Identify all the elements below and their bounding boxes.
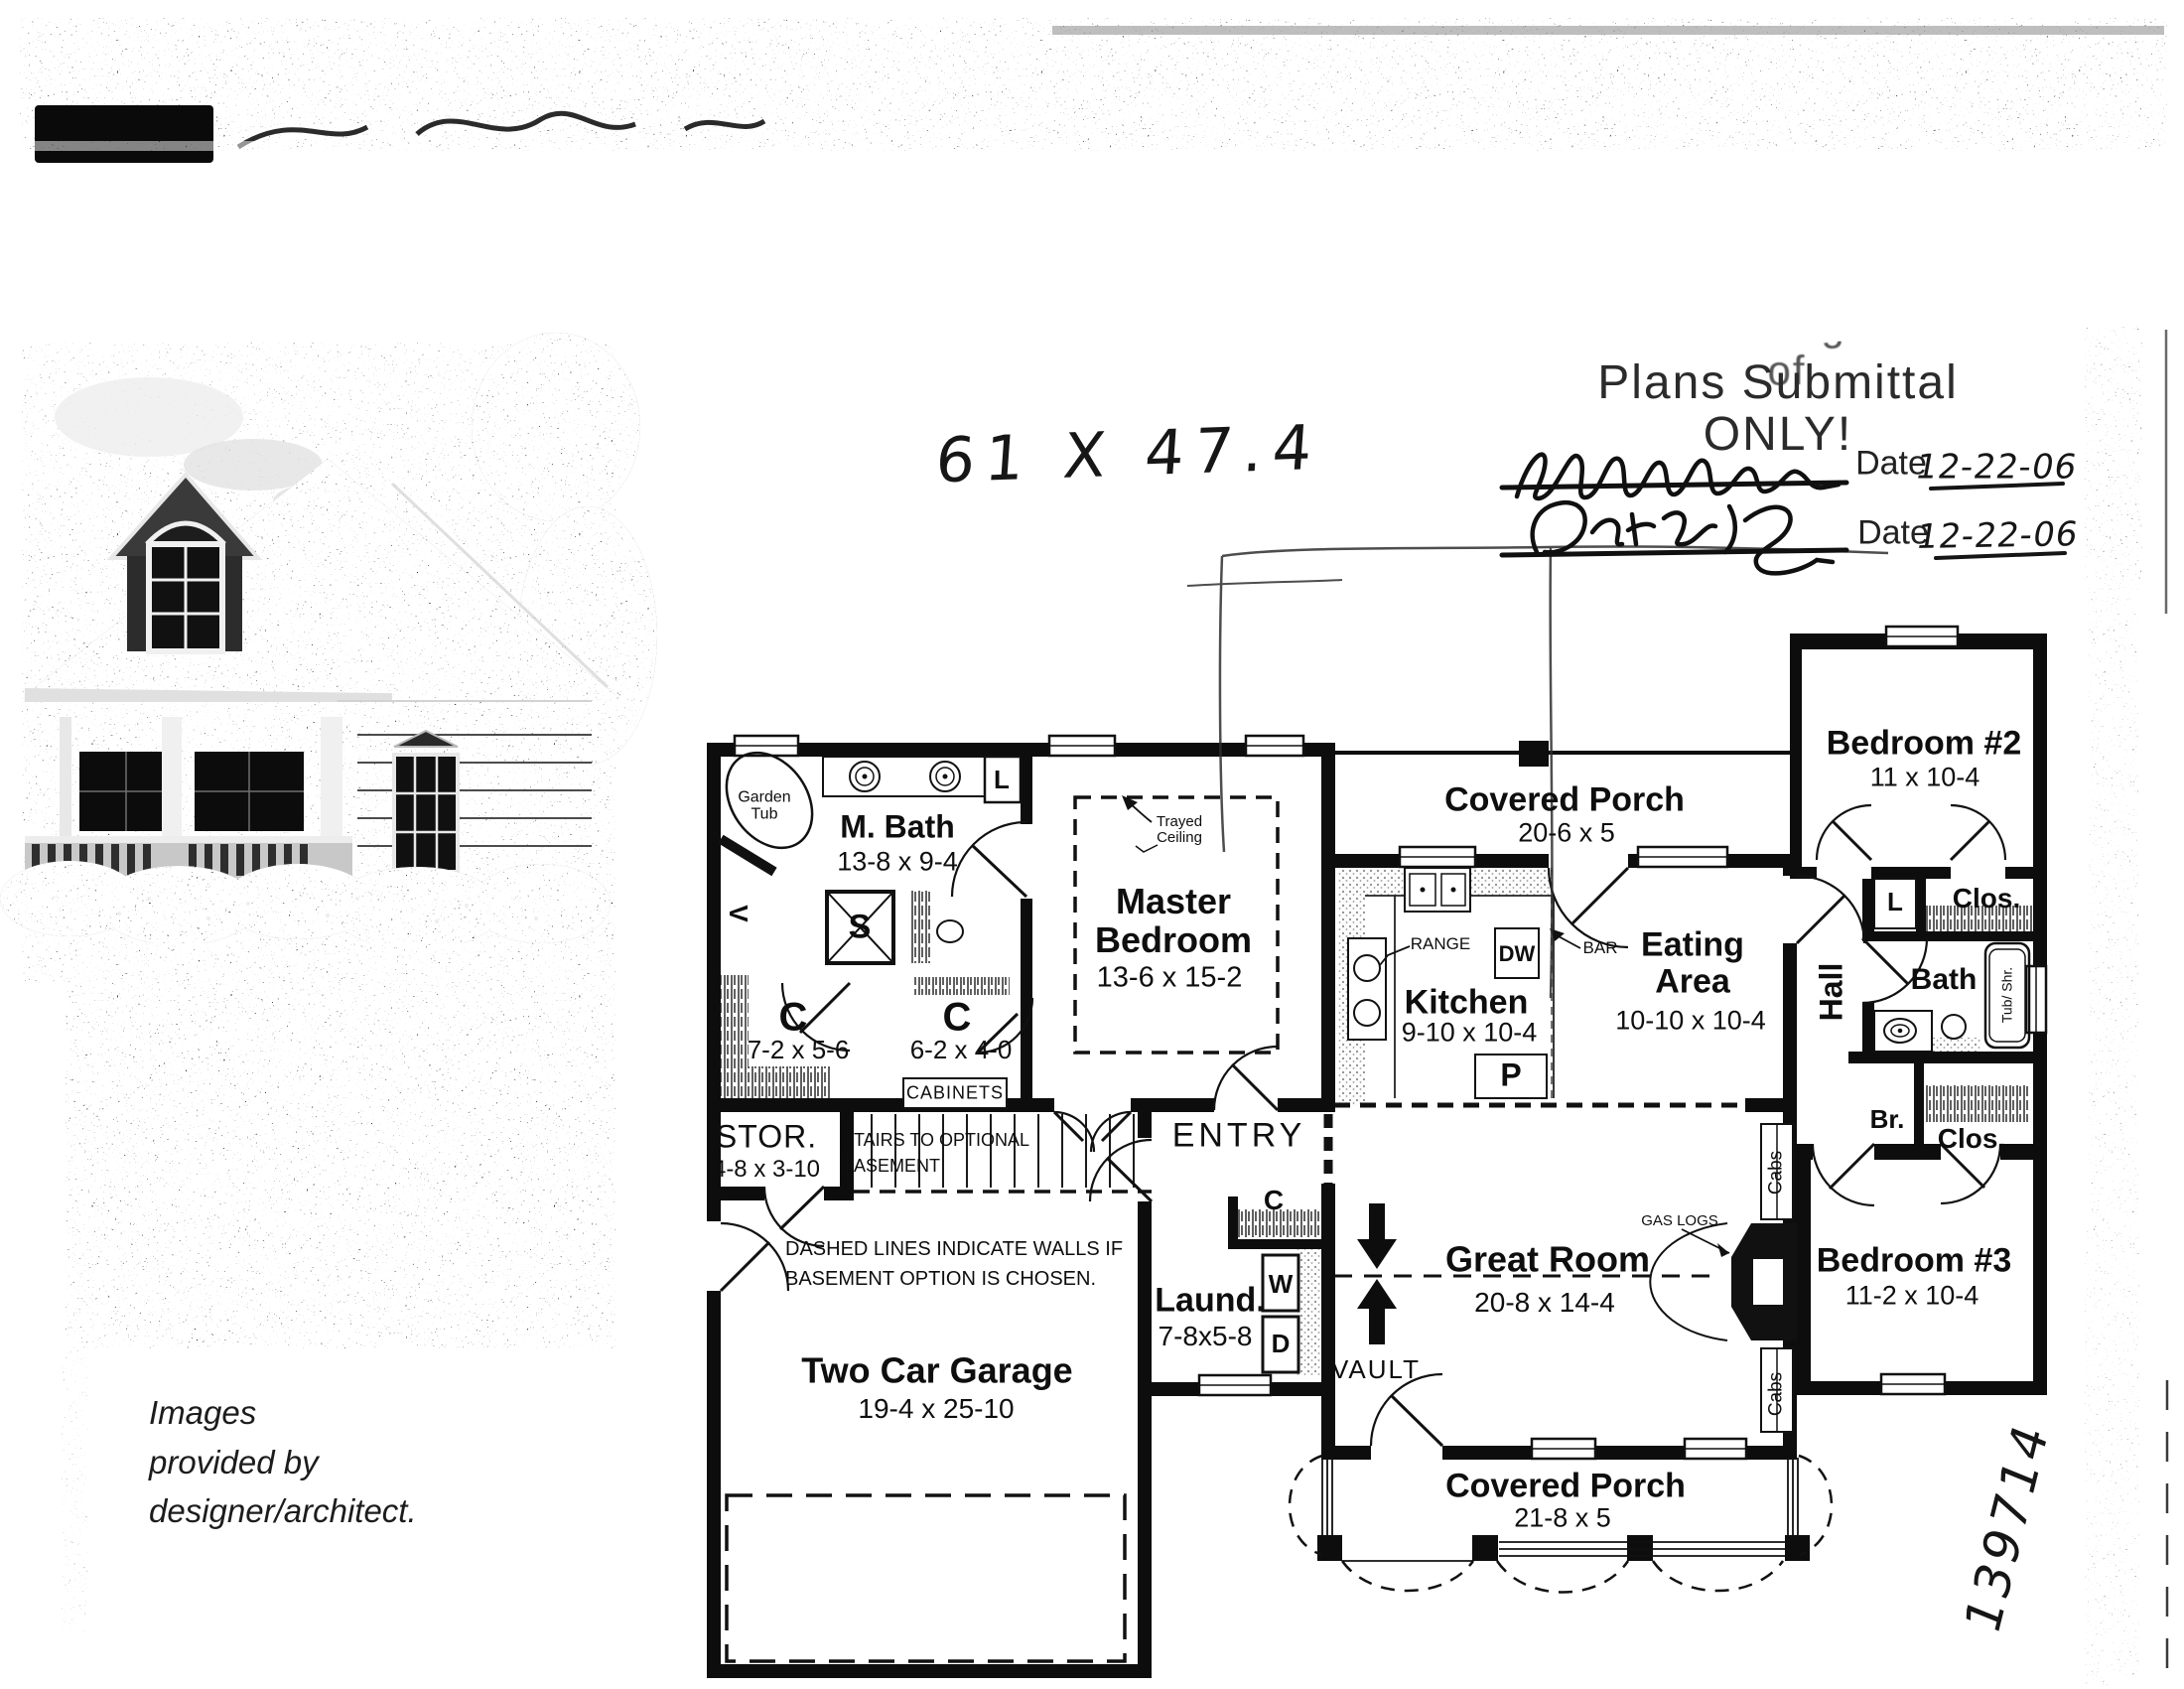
garden-tub-label: Garden Tub	[738, 789, 790, 824]
room-label-bath2: Bath	[1911, 964, 1978, 996]
room-label-bedroom2: Bedroom #2	[1827, 726, 2022, 763]
broom-closet-label: Br.	[1870, 1105, 1905, 1133]
vault-arrows-icon	[1357, 1203, 1397, 1344]
room-label-storage: STOR.	[716, 1120, 817, 1155]
cabinets-label: CABINETS	[906, 1083, 1004, 1102]
room-label-kitchen: Kitchen	[1405, 985, 1529, 1022]
closet1-label: C	[779, 996, 808, 1039]
room-dims-eating: 10-10 x 10-4	[1615, 1006, 1766, 1035]
room-label-master: Master Bedroom	[1095, 883, 1252, 960]
room-dims-kitchen: 9-10 x 10-4	[1402, 1018, 1538, 1047]
closet2-dims: 6-2 x 4-0	[910, 1036, 1013, 1063]
gas-logs-label: GAS LOGS	[1641, 1213, 1718, 1229]
linen-mbath-label: L	[994, 766, 1010, 793]
signature-1	[1502, 455, 1846, 498]
room-dims-great: 20-8 x 14-4	[1474, 1288, 1615, 1318]
handwritten-size-note: 61 X 47.4	[933, 415, 1323, 495]
room-dims-front-porch: 21-8 x 5	[1514, 1503, 1611, 1532]
trayed-ceiling-note: Trayed Ceiling	[1157, 814, 1202, 846]
dishwasher-label: DW	[1499, 942, 1536, 966]
room-dims-rear-porch: 20-6 x 5	[1518, 818, 1615, 847]
stamp-date-value-2: 12-22-06	[1914, 516, 2082, 556]
trayed-ceiling-arrow	[1122, 795, 1158, 852]
tub-shower-label: Tub/ Shr.	[1999, 967, 2014, 1023]
signature-2	[1502, 502, 1846, 573]
cabs-label-lower: Cabs	[1767, 1372, 1788, 1416]
vault-label: VAULT	[1331, 1355, 1421, 1383]
photo-credit: Images provided by designer/architect.	[149, 1388, 417, 1536]
closet1-dims: 7-2 x 5-6	[748, 1036, 850, 1063]
room-label-garage: Two Car Garage	[801, 1352, 1072, 1391]
dryer-label: D	[1272, 1330, 1291, 1357]
shower-label: S	[849, 910, 872, 946]
vanity-label: V	[725, 905, 752, 921]
room-dims-laundry: 7-8x5-8	[1159, 1322, 1253, 1351]
entry-label: ENTRY	[1172, 1118, 1306, 1155]
pantry-label: P	[1500, 1058, 1521, 1093]
hall-label: Hall	[1815, 963, 1849, 1022]
closet2-label: C	[943, 996, 972, 1039]
room-label-laundry: Laund.	[1155, 1283, 1265, 1320]
linen-hall-label: L	[1887, 888, 1903, 915]
fireplace-icon	[1650, 1223, 1797, 1340]
room-label-rear-porch: Covered Porch	[1444, 782, 1685, 819]
room-label-eating: Eating Area	[1641, 926, 1744, 999]
basement-note: DASHED LINES INDICATE WALLS IF BASEMENT …	[785, 1234, 1123, 1294]
room-label-mbath: M. Bath	[840, 810, 955, 845]
room-dims-garage: 19-4 x 25-10	[858, 1394, 1014, 1424]
room-label-bedroom3: Bedroom #3	[1817, 1243, 2012, 1280]
range-label: RANGE	[1411, 935, 1470, 953]
scanned-floor-plan-page: Acknowledgement of Plans Submittal ONLY!…	[0, 0, 2184, 1689]
cabs-label-upper: Cabs	[1767, 1151, 1788, 1195]
entry-closet-label: C	[1264, 1186, 1284, 1215]
room-dims-mbath: 13-8 x 9-4	[837, 847, 958, 876]
room-dims-bedroom2: 11 x 10-4	[1870, 763, 1980, 791]
room-label-front-porch: Covered Porch	[1445, 1469, 1686, 1505]
washer-label: W	[1269, 1270, 1294, 1298]
scan-right-streak	[2085, 326, 2167, 1688]
stairs-note: STAIRS TO OPTIONAL BASEMENT	[842, 1127, 1029, 1179]
room-label-great: Great Room	[1445, 1241, 1650, 1280]
closet-bed2-label: Clos.	[1953, 884, 2020, 914]
room-dims-storage: 4-8 x 3-10	[713, 1157, 820, 1183]
scan-top-band	[20, 18, 2167, 163]
closet-bed3-label: Clos.	[1938, 1124, 2005, 1154]
room-dims-master: 13-6 x 15-2	[1097, 962, 1243, 993]
stamp-date-value-1: 12-22-06	[1913, 450, 2081, 487]
bar-label: BAR	[1583, 939, 1618, 957]
room-dims-bedroom3: 11-2 x 10-4	[1845, 1281, 1979, 1310]
